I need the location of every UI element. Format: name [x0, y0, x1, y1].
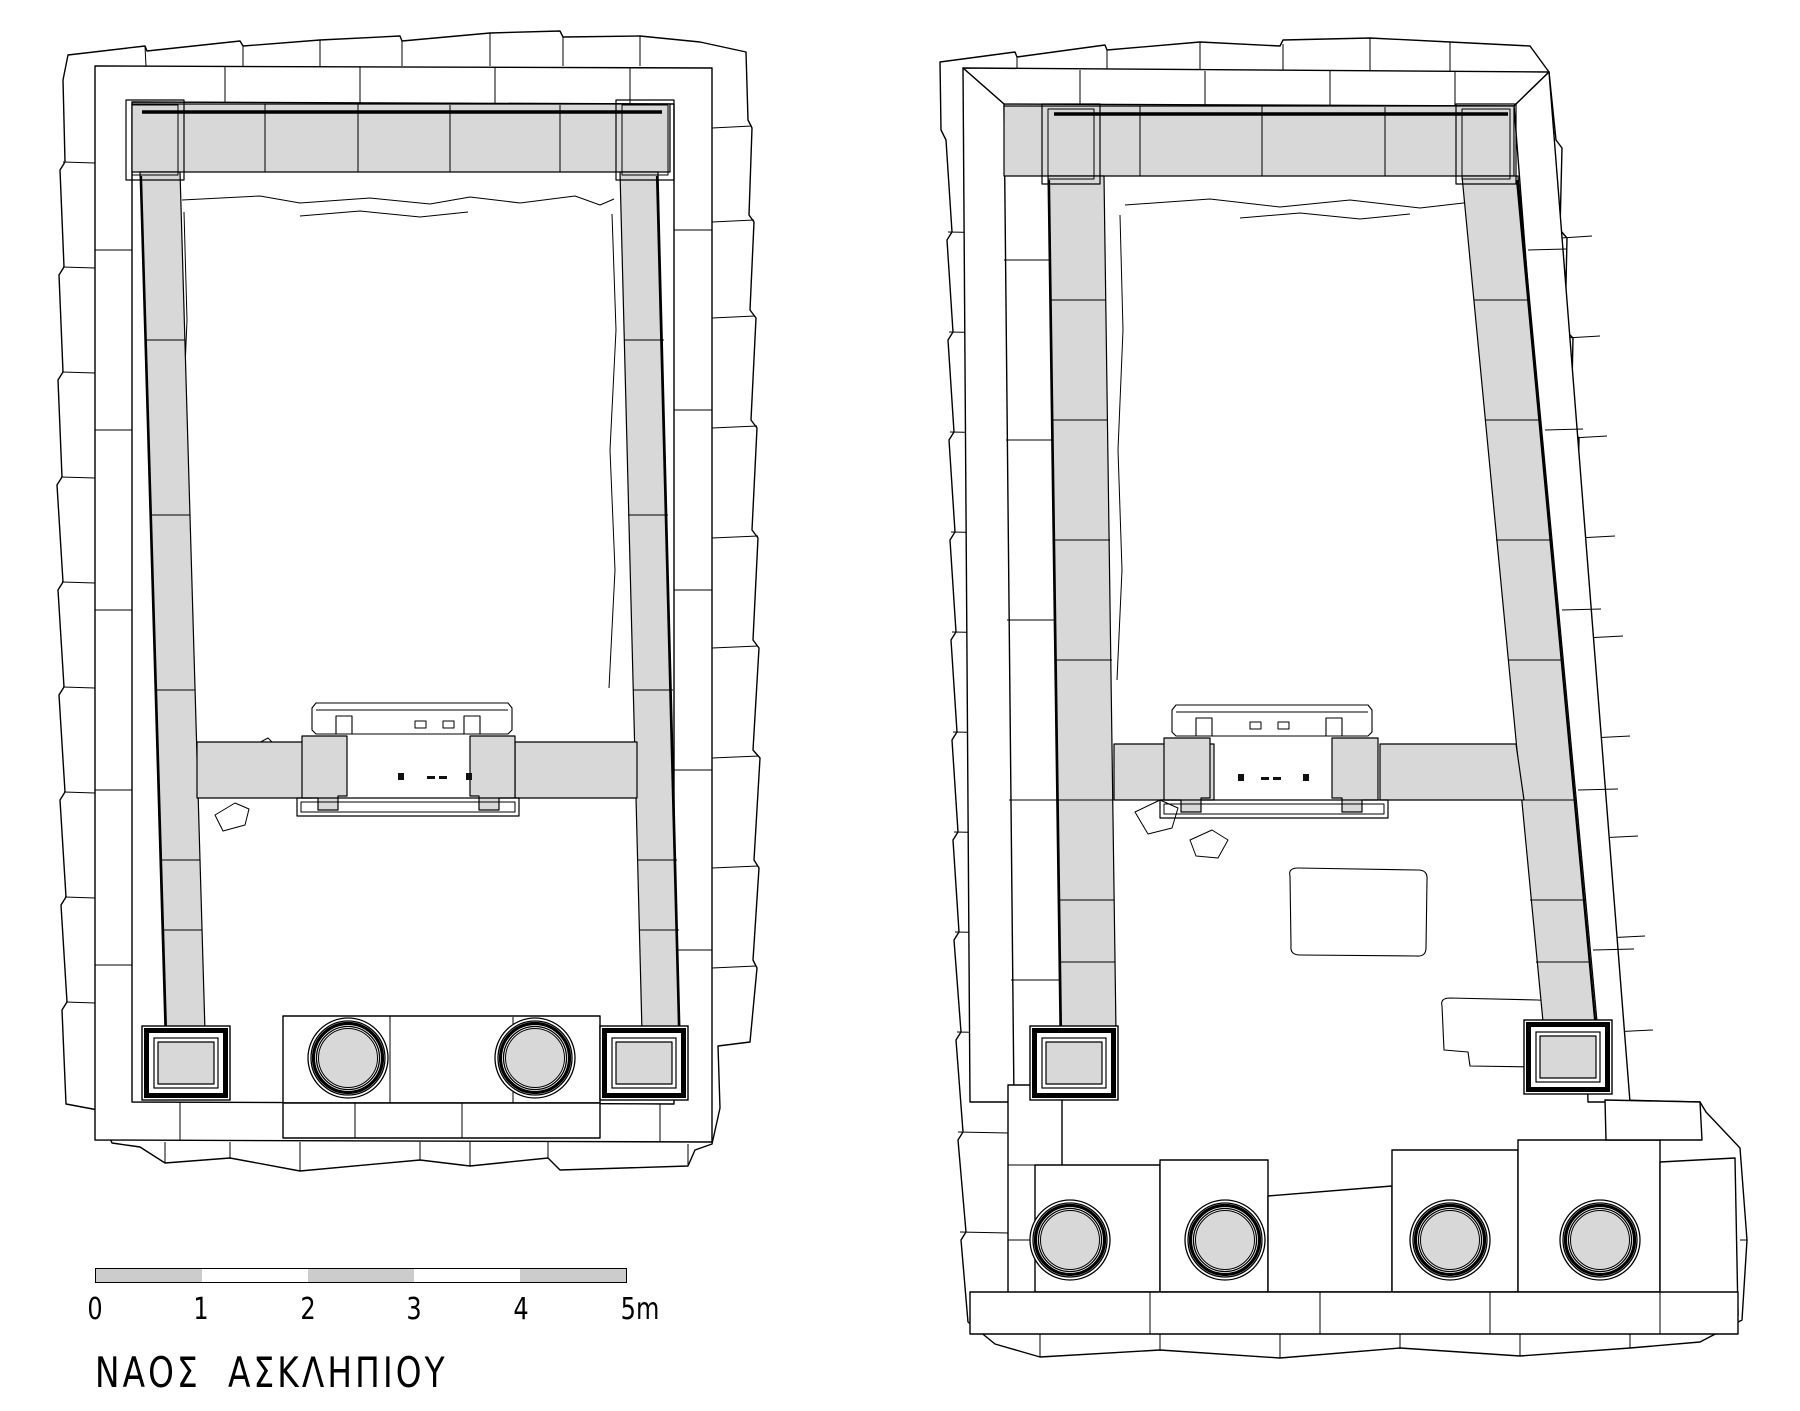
scale-tick-5m: 5m [604, 1292, 676, 1327]
scale-tick-2: 2 [272, 1292, 344, 1327]
left-plan-anta-base-right [600, 1026, 688, 1100]
left-temple-plan [57, 31, 760, 1171]
right-plan-anta-base-right [1524, 1020, 1612, 1094]
right-plan-column-base-4 [1560, 1200, 1640, 1280]
left-plan-anta-base-left [142, 1026, 230, 1100]
scale-bar-segment [414, 1269, 520, 1282]
scale-bar-segment [202, 1269, 308, 1282]
left-plan-porch [283, 1016, 600, 1138]
left-plan-column-base-2 [495, 1018, 575, 1098]
scale-tick-1: 1 [165, 1292, 237, 1327]
scale-bar-segment [96, 1269, 202, 1282]
scale-bar-segment [308, 1269, 414, 1282]
scale-tick-4: 4 [485, 1292, 557, 1327]
scale-tick-3: 3 [378, 1292, 450, 1327]
right-plan-anta-base-left [1030, 1026, 1118, 1100]
temple-plans-drawing [0, 0, 1800, 1411]
drawing-title: ΝΑΟΣ ΑΣΚΛΗΠΙΟΥ [95, 1348, 448, 1397]
scale-bar [95, 1268, 627, 1283]
right-plan-column-base-2 [1185, 1200, 1265, 1280]
scale-tick-0: 0 [59, 1292, 131, 1327]
scale-bar-segment [520, 1269, 626, 1282]
left-plan-column-base-1 [308, 1018, 388, 1098]
right-plan-column-base-1 [1030, 1200, 1110, 1280]
right-temple-plan [940, 38, 1747, 1358]
right-plan-column-base-3 [1410, 1200, 1490, 1280]
left-plan-threshold [312, 703, 512, 734]
right-plan-threshold [1172, 705, 1372, 736]
